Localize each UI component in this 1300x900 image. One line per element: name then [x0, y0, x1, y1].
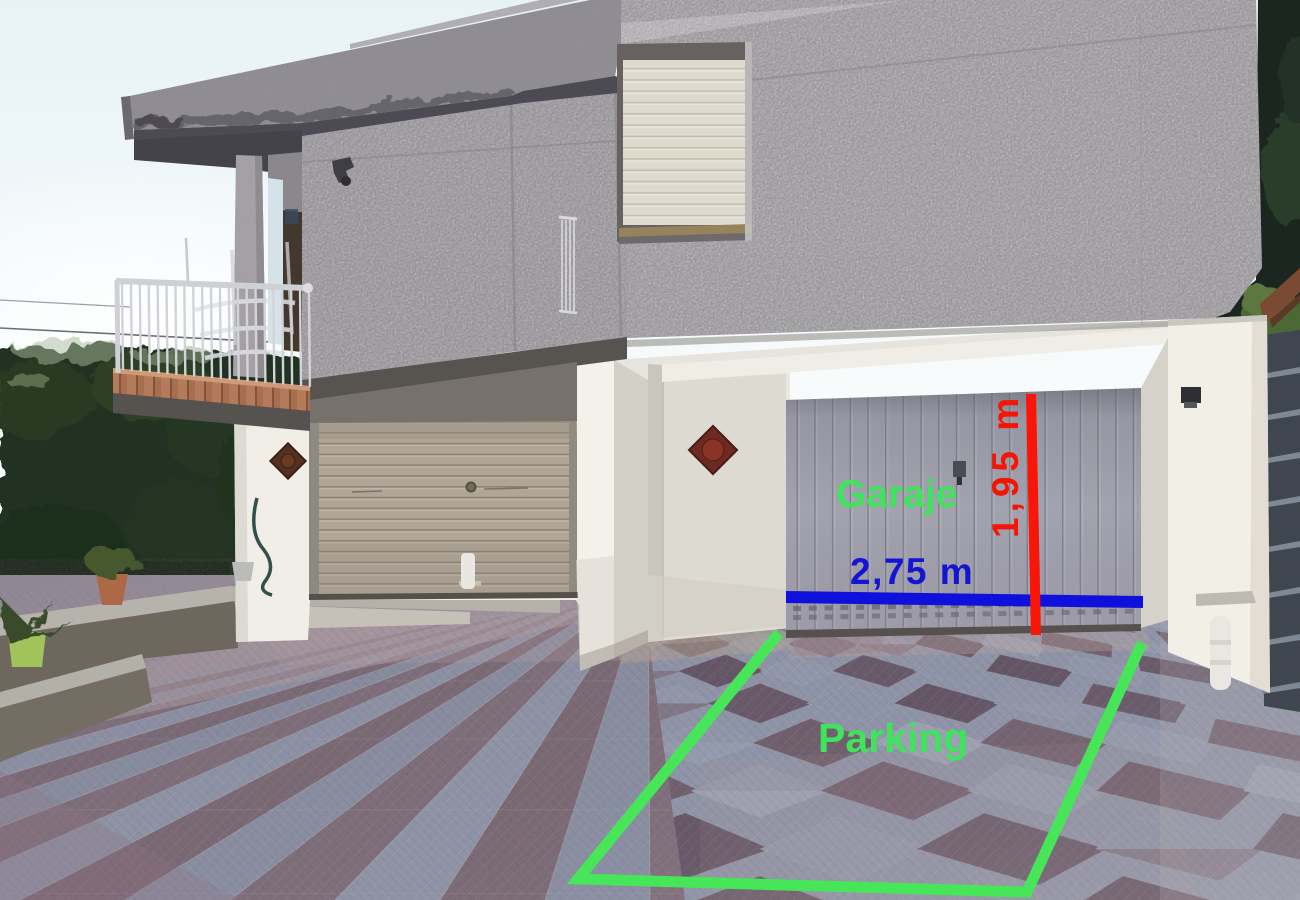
svg-text:1,95 m: 1,95 m: [985, 393, 1026, 538]
svg-text:Parking: Parking: [818, 715, 968, 761]
svg-text:Garaje: Garaje: [836, 473, 957, 516]
svg-text:2,75 m: 2,75 m: [850, 551, 974, 592]
